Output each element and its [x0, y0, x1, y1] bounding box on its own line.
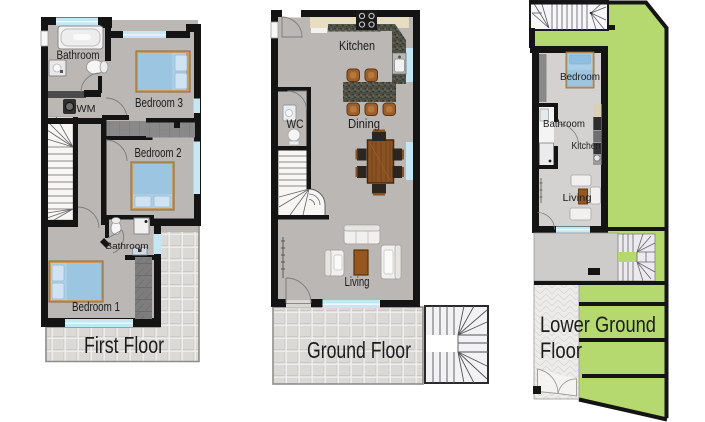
svg-text:Bedroom 1: Bedroom 1 [72, 300, 120, 314]
svg-text:Living: Living [345, 275, 370, 289]
svg-text:Bedroom 2: Bedroom 2 [135, 146, 182, 160]
svg-text:Kitchen: Kitchen [339, 38, 375, 53]
svg-text:Bathroom: Bathroom [106, 241, 149, 251]
svg-text:Kitchen: Kitchen [572, 140, 601, 152]
svg-text:Lower Ground: Lower Ground [540, 312, 656, 337]
svg-text:Bedroom: Bedroom [560, 71, 600, 83]
svg-text:WC: WC [287, 119, 304, 131]
svg-text:Ground Floor: Ground Floor [307, 337, 411, 363]
svg-text:Bathroom: Bathroom [543, 118, 585, 130]
svg-text:First Floor: First Floor [84, 332, 164, 358]
svg-text:WM: WM [77, 103, 96, 115]
svg-text:Bedroom 3: Bedroom 3 [135, 96, 183, 110]
svg-text:Living: Living [563, 193, 592, 204]
svg-text:Floor: Floor [540, 338, 582, 363]
svg-text:Bathroom: Bathroom [57, 50, 100, 62]
svg-text:Dining: Dining [348, 116, 380, 131]
